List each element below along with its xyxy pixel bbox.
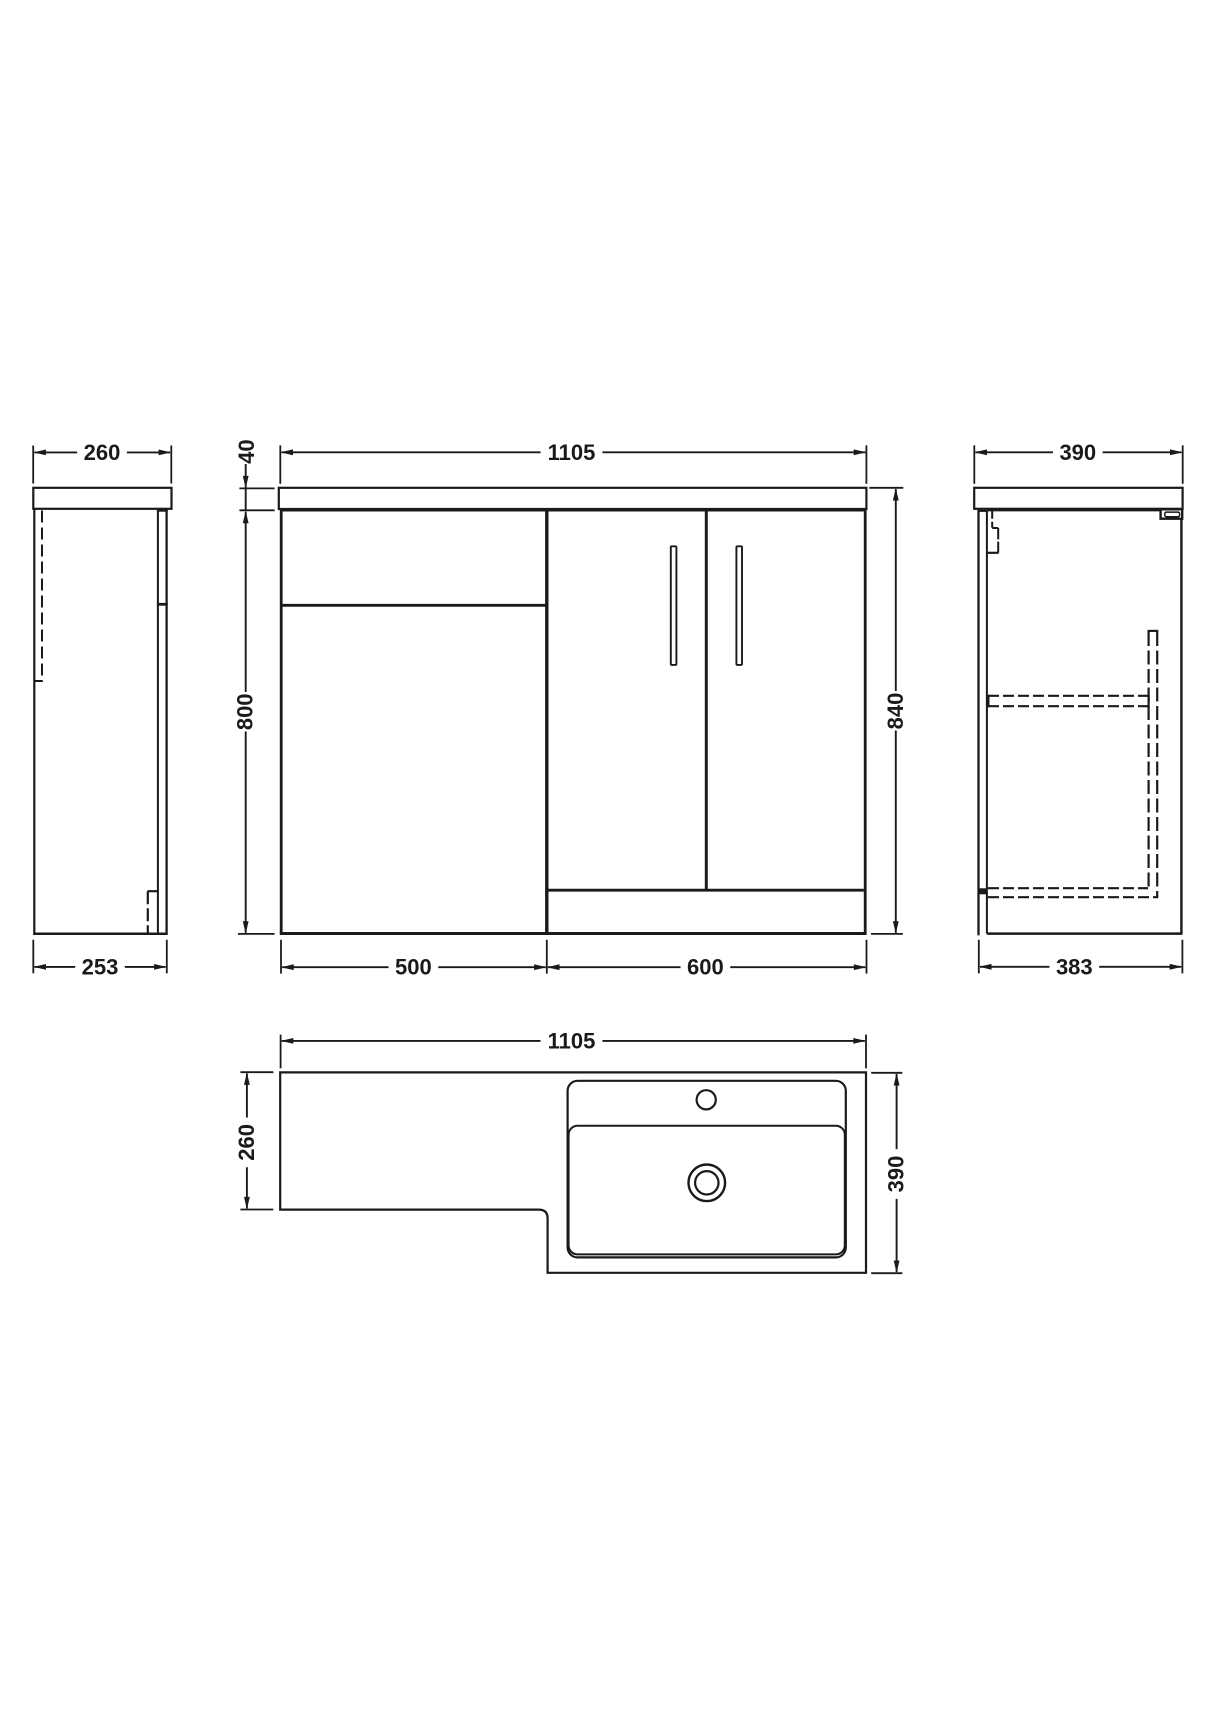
svg-text:500: 500 bbox=[395, 955, 432, 980]
svg-text:840: 840 bbox=[883, 693, 908, 730]
svg-text:1105: 1105 bbox=[548, 440, 596, 465]
svg-text:253: 253 bbox=[82, 954, 119, 979]
svg-text:40: 40 bbox=[234, 439, 259, 463]
svg-text:600: 600 bbox=[687, 955, 724, 980]
svg-text:390: 390 bbox=[1059, 440, 1096, 465]
svg-text:260: 260 bbox=[84, 440, 121, 465]
svg-text:1105: 1105 bbox=[548, 1028, 596, 1053]
svg-text:390: 390 bbox=[884, 1156, 909, 1193]
svg-text:383: 383 bbox=[1056, 954, 1093, 979]
svg-text:260: 260 bbox=[234, 1124, 259, 1161]
svg-text:800: 800 bbox=[233, 693, 258, 730]
